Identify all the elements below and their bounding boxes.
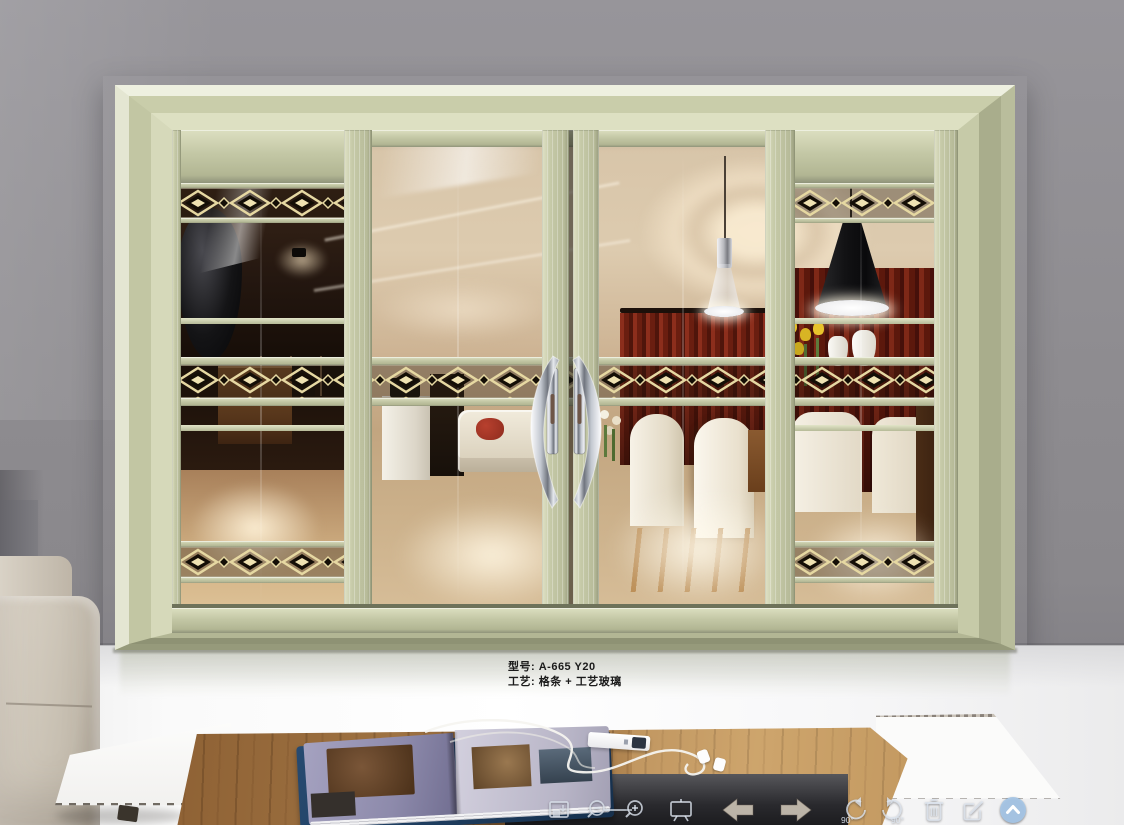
door-handles — [524, 350, 608, 520]
magazine-photo — [311, 791, 356, 817]
diamond-band-bottom-left — [172, 547, 352, 577]
earphone-cable — [410, 712, 730, 787]
zoom-in-icon[interactable] — [620, 794, 654, 825]
wall-glow — [372, 280, 552, 340]
glazing-bar — [172, 425, 352, 431]
rotate-left-icon[interactable]: 90° — [837, 794, 871, 825]
edit-icon[interactable] — [957, 794, 991, 825]
panel-stile — [765, 130, 795, 633]
panel-stile — [172, 130, 181, 633]
previous-icon[interactable] — [719, 794, 757, 825]
panel-top-rail — [344, 130, 570, 147]
next-icon[interactable] — [777, 794, 815, 825]
image-viewer: 型号: A-665 Y20 工艺: 格条 + 工艺玻璃 — [0, 0, 1124, 825]
glazing-bar — [784, 425, 958, 431]
glazing-rail — [784, 577, 958, 583]
pendant-lamp-glow — [704, 306, 744, 317]
floor-object — [117, 805, 139, 823]
delete-icon[interactable] — [917, 794, 951, 825]
panel-top-rail — [784, 130, 958, 183]
pendant-fitting — [717, 238, 732, 268]
black-lamp-glow — [815, 300, 889, 316]
svg-text:90°: 90° — [891, 815, 904, 825]
magazine-photo — [326, 744, 414, 798]
panel-top-rail — [172, 130, 352, 183]
panel-bottom-rail — [172, 608, 958, 633]
door-glass-interior-scene — [172, 130, 958, 633]
display-pedestal — [382, 396, 430, 480]
scene-floor-glow-right — [612, 492, 784, 604]
diamond-band-top-left — [172, 188, 352, 218]
slideshow-icon[interactable] — [664, 794, 698, 825]
diamond-band-top-right — [784, 188, 958, 218]
product-craft-text: 工艺: 格条 + 工艺玻璃 — [508, 675, 728, 690]
glazing-bar — [784, 318, 958, 324]
panel-stile — [344, 130, 372, 633]
rotate-right-icon[interactable]: 90° — [877, 794, 911, 825]
pendant-wire — [724, 156, 726, 242]
product-model-text: 型号: A-665 Y20 — [508, 660, 728, 675]
product-caption: 型号: A-665 Y20 工艺: 格条 + 工艺玻璃 — [508, 660, 728, 690]
panel-stile — [934, 130, 958, 633]
glazing-rail — [784, 218, 958, 223]
glazing-bar — [172, 318, 352, 324]
save-icon[interactable] — [542, 794, 576, 825]
remote-dark-end — [632, 737, 647, 749]
collapse-icon[interactable] — [996, 794, 1030, 825]
svg-text:90°: 90° — [841, 815, 854, 825]
panel-top-rail — [568, 130, 795, 147]
remote-button — [624, 739, 628, 744]
red-pillow — [476, 418, 504, 440]
glazing-rail — [172, 577, 352, 583]
glazing-rail — [172, 218, 352, 223]
diamond-band-bottom-right — [784, 547, 958, 577]
